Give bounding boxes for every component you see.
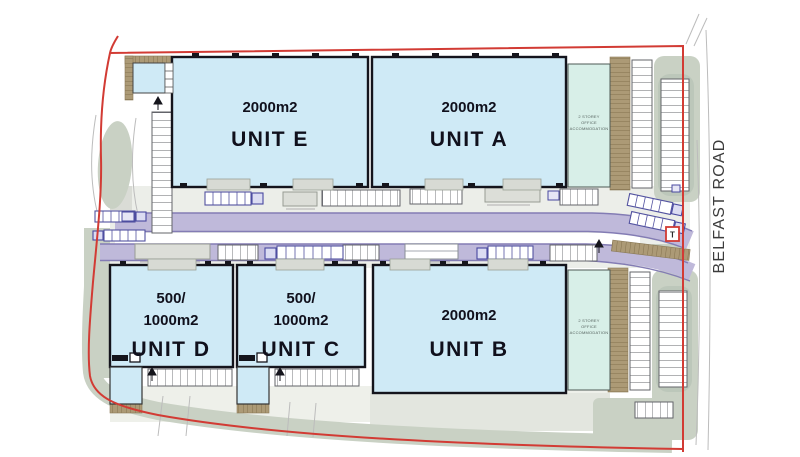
office-north-line1: 2 STOREY	[578, 114, 599, 119]
unit-d-area1: 500/	[156, 290, 186, 307]
unit-d-area2: 1000m2	[143, 312, 198, 329]
office-north-line3: ACCOMMODATION	[570, 126, 609, 131]
truck	[93, 230, 145, 241]
unit-d-name: UNIT D	[132, 338, 211, 361]
truck	[265, 246, 343, 259]
unit-d-annex	[110, 367, 142, 404]
unit-c-area2: 1000m2	[273, 312, 328, 329]
truck	[477, 246, 533, 259]
unit-e-building	[172, 57, 368, 187]
totem-label: T	[670, 231, 675, 240]
truck	[205, 192, 263, 205]
office-north-line2: OFFICE	[581, 120, 597, 125]
office-south-line2: OFFICE	[581, 324, 597, 329]
substation-building	[133, 63, 165, 93]
office-south-line1: 2 STOREY	[578, 318, 599, 323]
unit-b-name: UNIT B	[430, 338, 509, 361]
unit-e-area: 2000m2	[242, 99, 297, 116]
unit-c-name: UNIT C	[262, 338, 341, 361]
site-plan-canvas: 2000m2 UNIT E 2000m2 UNIT A 500/ 1000m2 …	[0, 0, 800, 457]
unit-c-annex	[237, 367, 269, 404]
truck	[95, 211, 146, 222]
totem-marker: T	[666, 227, 679, 241]
unit-a-area: 2000m2	[441, 99, 496, 116]
unit-a-name: UNIT A	[430, 128, 508, 151]
unit-b-area: 2000m2	[441, 307, 496, 324]
office-south-line3: ACCOMMODATION	[570, 330, 609, 335]
unit-b-building	[373, 265, 566, 393]
site-plan: 2000m2 UNIT E 2000m2 UNIT A 500/ 1000m2 …	[0, 0, 800, 457]
unit-e-name: UNIT E	[231, 128, 309, 151]
unit-c-area1: 500/	[286, 290, 316, 307]
belfast-road-label: BELFAST ROAD	[711, 138, 728, 273]
unit-a-building	[372, 57, 566, 187]
